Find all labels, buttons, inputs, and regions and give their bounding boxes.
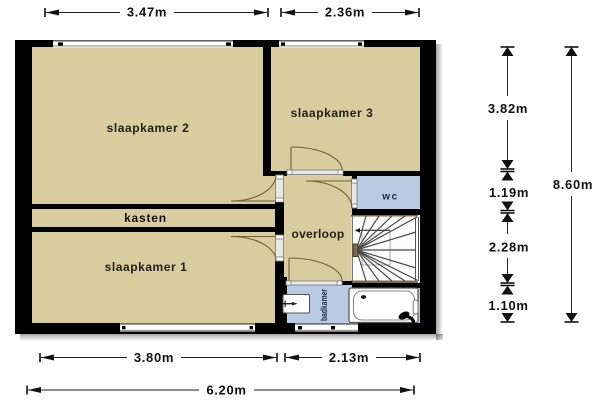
svg-text:badkamer: badkamer bbox=[319, 289, 329, 321]
svg-text:3.82m: 3.82m bbox=[488, 101, 528, 116]
svg-text:kasten: kasten bbox=[124, 211, 167, 225]
svg-text:slaapkamer 2: slaapkamer 2 bbox=[107, 121, 190, 135]
svg-text:slaapkamer 1: slaapkamer 1 bbox=[105, 260, 188, 274]
svg-text:6.20m: 6.20m bbox=[206, 383, 246, 398]
svg-text:2.13m: 2.13m bbox=[329, 350, 369, 365]
svg-text:overloop: overloop bbox=[291, 227, 344, 241]
svg-text:1.10m: 1.10m bbox=[488, 298, 528, 313]
svg-text:8.60m: 8.60m bbox=[553, 177, 593, 192]
svg-text:1.19m: 1.19m bbox=[489, 185, 529, 200]
svg-text:3.47m: 3.47m bbox=[127, 5, 167, 20]
svg-text:2.36m: 2.36m bbox=[325, 5, 365, 20]
svg-text:slaapkamer 3: slaapkamer 3 bbox=[291, 106, 374, 120]
svg-text:wc: wc bbox=[381, 192, 399, 203]
svg-text:3.80m: 3.80m bbox=[134, 350, 174, 365]
svg-text:2.28m: 2.28m bbox=[489, 240, 529, 255]
